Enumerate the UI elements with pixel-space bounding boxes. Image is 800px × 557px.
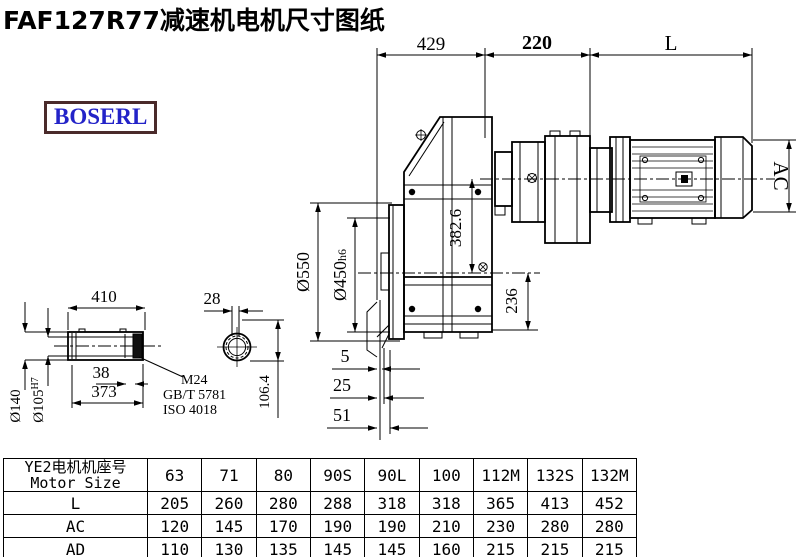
dim-382: 382.6	[446, 179, 472, 273]
dim-label-51: 51	[333, 405, 351, 425]
note-m24: M24	[181, 373, 207, 388]
dim-top-chain: 429 220 L	[377, 31, 752, 300]
table-cell: 230	[473, 515, 527, 538]
table-cell: 318	[365, 492, 419, 515]
header-cn: YE2电机机座号	[4, 459, 147, 475]
dim-label-28: 28	[204, 289, 221, 308]
motor	[610, 137, 752, 224]
dim-label-429: 429	[417, 34, 446, 55]
table-cell: 135	[256, 538, 310, 557]
col-header: 132M	[582, 459, 636, 492]
dim-label-38: 38	[93, 363, 110, 382]
table-cell: 145	[365, 538, 419, 557]
dim-AC: AC	[753, 140, 796, 212]
table-cell: 215	[582, 538, 636, 557]
dim-label-5: 5	[341, 346, 350, 366]
table-cell: 210	[419, 515, 473, 538]
row-label: AD	[4, 538, 148, 557]
table-cell: 120	[148, 515, 202, 538]
table-cell: 318	[419, 492, 473, 515]
col-header: 80	[256, 459, 310, 492]
col-header: 71	[202, 459, 256, 492]
table-cell: 365	[473, 492, 527, 515]
table-cell: 280	[528, 515, 582, 538]
row-label: L	[4, 492, 148, 515]
motor-size-table: YE2电机机座号 Motor Size 63 71 80 90S 90L 100…	[3, 458, 637, 557]
col-header: 63	[148, 459, 202, 492]
table-cell: 190	[310, 515, 364, 538]
dim-label-25: 25	[333, 375, 351, 395]
shaft-detail-view: 410 38 373 Ø140 Ø105H7 M24 GB/T 5781	[8, 287, 226, 423]
header-en: Motor Size	[4, 475, 147, 491]
col-header: 132S	[528, 459, 582, 492]
table-cell: 288	[310, 492, 364, 515]
col-header: 90S	[310, 459, 364, 492]
table-cell: 215	[528, 538, 582, 557]
technical-drawing: 429 220 L	[0, 0, 800, 457]
table-cell: 160	[419, 538, 473, 557]
table-cell: 190	[365, 515, 419, 538]
table-cell: 280	[582, 515, 636, 538]
col-header: 112M	[473, 459, 527, 492]
dim-label-236: 236	[502, 288, 521, 314]
table-row-AD: AD 110 130 135 145 145 160 215 215 215	[4, 538, 637, 557]
dim-label-AC: AC	[769, 161, 793, 190]
dim-label-140: Ø140	[8, 389, 24, 422]
dim-flange-diameters: Ø550 Ø450h6	[293, 203, 400, 341]
row-label: AC	[4, 515, 148, 538]
table-cell: 145	[310, 538, 364, 557]
table-cell: 260	[202, 492, 256, 515]
col-header: 100	[419, 459, 473, 492]
table-cell: 452	[582, 492, 636, 515]
dim-236: 236	[492, 273, 538, 330]
dim-label-220: 220	[522, 32, 552, 54]
table-header-motor-size: YE2电机机座号 Motor Size	[4, 459, 148, 492]
dim-label-373: 373	[91, 382, 117, 401]
note-iso: ISO 4018	[163, 403, 217, 418]
table-cell: 205	[148, 492, 202, 515]
table-row-AC: AC 120 145 170 190 190 210 230 280 280	[4, 515, 637, 538]
table-cell: 130	[202, 538, 256, 557]
dim-label-L: L	[665, 31, 678, 55]
gearbox-housing	[367, 117, 492, 440]
table-cell: 145	[202, 515, 256, 538]
table-cell: 170	[256, 515, 310, 538]
dim-label-450: Ø450h6	[330, 249, 350, 301]
page: FAF127R77减速机电机尺寸图纸 BOSERL 429 220 L	[0, 0, 800, 557]
table-cell: 280	[256, 492, 310, 515]
dim-label-410: 410	[91, 287, 117, 306]
dim-label-382: 382.6	[446, 209, 465, 247]
note-gbt: GB/T 5781	[163, 388, 226, 403]
dim-foot-offsets: 5 25 51	[327, 346, 428, 428]
dim-label-106: 106.4	[257, 375, 273, 409]
table-row-L: L 205 260 280 288 318 318 365 413 452	[4, 492, 637, 515]
table-cell: 413	[528, 492, 582, 515]
dim-label-550: Ø550	[293, 252, 313, 292]
table-cell: 215	[473, 538, 527, 557]
motor-adapter	[495, 131, 612, 243]
table-cell: 110	[148, 538, 202, 557]
table-header-row: YE2电机机座号 Motor Size 63 71 80 90S 90L 100…	[4, 459, 637, 492]
col-header: 90L	[365, 459, 419, 492]
dim-label-105: Ø105H7	[30, 377, 47, 423]
